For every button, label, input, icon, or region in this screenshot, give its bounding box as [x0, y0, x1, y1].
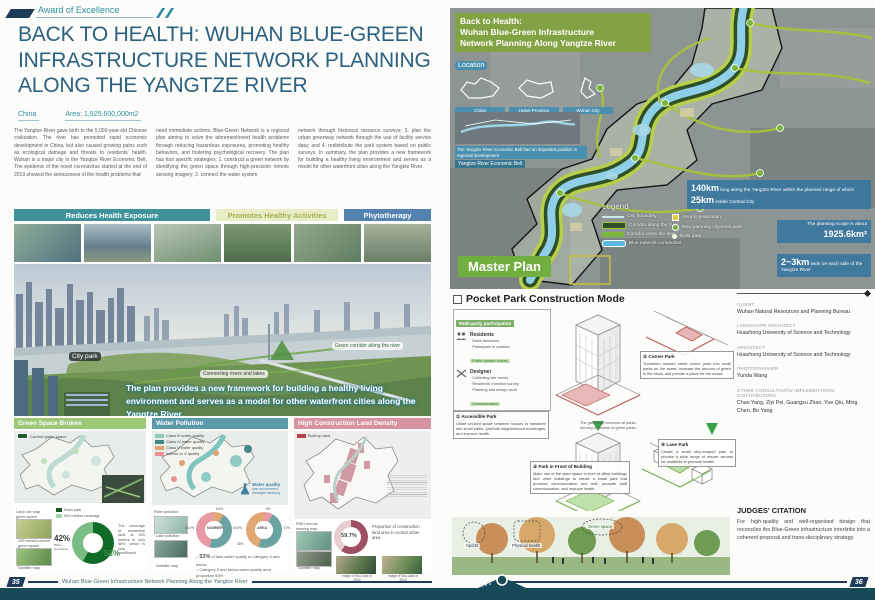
panel-green-space-broken: Green Space Broken Current green space L… — [14, 418, 146, 572]
panel-title: Green Space Broken — [14, 418, 146, 429]
participation-box: Multi-party participation Residents · Ma… — [453, 309, 551, 411]
legend-class3: Class III water quality — [166, 433, 204, 438]
greenway-note: The greenway connects all parks, forming… — [580, 421, 638, 431]
participation-title: Multi-party participation — [456, 320, 514, 327]
water-notes: – 53% of lake water quality in Category … — [196, 554, 284, 578]
donut-center: AREA — [257, 526, 267, 530]
map-label: RSEI remote sensing map — [296, 522, 330, 531]
rsei-minimap — [296, 531, 332, 551]
city-park-label: City park — [69, 352, 101, 361]
wuhan-minimap: Wuhan City — [563, 74, 613, 114]
square-bullet-icon — [453, 295, 462, 304]
sha-lake-photo-2013 — [382, 556, 422, 574]
legend-label: New planning city-level park — [682, 225, 742, 230]
satellite-minimap — [296, 551, 332, 567]
award-ribbon-block — [5, 9, 35, 18]
seg-label: 44.8% — [233, 526, 242, 530]
designer-icon — [456, 369, 467, 378]
credits-sidebar: CLIENT Wuhan Natural Resources and Plann… — [737, 293, 870, 422]
credit-label: LANDSCAPE ARCHITECT — [737, 323, 870, 329]
render-label-green-space: Green space — [586, 524, 614, 529]
thumbnail-strip — [14, 224, 431, 262]
pct-42: 42% — [54, 534, 70, 543]
legend-class4: Class IV water quality — [166, 439, 204, 444]
exist-park-swatch — [672, 234, 677, 239]
thumbnail-photo — [154, 224, 221, 262]
footer-left: 35 Wuhan Blue-Green Infrastructure Netwo… — [8, 577, 432, 587]
flask-icon — [240, 483, 250, 495]
china-minimap: China — [455, 74, 505, 114]
note-front-building: ③ Park in Front of BuildingMake use of t… — [530, 461, 630, 494]
builtup-label: Built-up land — [308, 433, 330, 438]
map-legend-points: Area in pedestrian New planning city-lev… — [672, 214, 742, 242]
page-title: BACK TO HEALTH: WUHAN BLUE-GREEN INFRAST… — [18, 22, 432, 99]
award-label: Award of Excellence — [36, 5, 153, 18]
construction-donut: 59.7% — [334, 520, 368, 554]
pct-597: 59.7% — [341, 533, 357, 539]
project-meta: China Area: 1,925,600,000m2 — [18, 111, 141, 121]
seg-label: 8.8% — [216, 507, 223, 511]
credit-label: OTHER CONSULTANTS/ IMPLEMENTORS/ CONTRIB… — [737, 388, 870, 400]
water-number-donut: NUMBER 8.8% 44.8% 46.4% — [196, 512, 232, 548]
credit-value: Huazhong University of Science and Techn… — [737, 330, 870, 337]
map-label: Satellite map — [156, 564, 178, 569]
participation-line: · Participate in creation — [470, 344, 510, 350]
thumbnail-photo — [224, 224, 291, 262]
each-park-swatch — [56, 508, 62, 512]
country-label: China — [18, 111, 39, 121]
each-park-label: Each park — [64, 508, 81, 513]
participation-line: · Residents' intention survey — [470, 381, 519, 387]
pct-42-sub: 500m uncovered — [54, 543, 72, 551]
economic-belt-caption: The Yangtze River Economic Belt has an i… — [455, 146, 587, 159]
pedestrian-swatch — [672, 214, 679, 221]
callout-140km: 140km long along the Yangtze River withi… — [687, 180, 871, 209]
map-label: Satellite map — [18, 566, 40, 571]
green-panel-note: The coverage of residential land at 500 … — [118, 524, 145, 556]
intro-col-3: network through historical resource surv… — [298, 128, 431, 179]
residents-icon — [456, 332, 467, 340]
thumbnail-photo — [84, 224, 151, 262]
map-label: Lake pollution — [156, 534, 179, 539]
seg-label: 8% — [266, 507, 271, 511]
economic-belt-minimap — [455, 112, 580, 144]
flask-sub: river environment damaged seriously — [252, 487, 290, 495]
intro-col-1: The Yangtze River gave birth to the 5,00… — [14, 128, 147, 179]
citation-title: JUDGES' CITATION — [737, 506, 870, 515]
legend-label: Exist park — [680, 234, 701, 239]
water-area-donut: AREA 8% 47% 45% — [246, 512, 282, 548]
award-ribbon: Award of Excellence — [8, 5, 171, 18]
strategy-banners: Reduces Health Exposure Promotes Healthy… — [14, 209, 431, 221]
construction-note: Proportion of construction land area in … — [372, 524, 428, 541]
note-accessible-park: ① Accessible ParkUtilize unused space be… — [453, 411, 549, 439]
credit-label: ARCHITECT — [737, 345, 870, 351]
hubei-minimap: Hubei Province — [509, 74, 559, 114]
builtup-swatch — [297, 434, 306, 438]
green-legend-label: Current green space — [30, 434, 66, 439]
slash-icon — [165, 8, 174, 18]
callout-scope: The planning scope is about1925.6km² — [777, 220, 871, 243]
note-lane-park: ④ Lane ParkCreate a small strip-shaped p… — [658, 439, 736, 467]
page-number-badge: 36 — [849, 577, 868, 587]
legend-title: Legend — [602, 202, 681, 211]
legend-inferior: Inferior to V quality — [166, 451, 199, 456]
citation-text: For high-quality and well-organised desi… — [737, 518, 870, 542]
map-title-banner: Back to Health: Wuhan Blue-Green Infrast… — [455, 13, 651, 52]
coverage-label: 500 meters coverage — [64, 514, 100, 519]
credit-value: Yunda Wang — [737, 373, 870, 380]
judges-citation: JUDGES' CITATION For high-quality and we… — [737, 506, 870, 542]
credit-value: Chao Yang, Ziyi Pei, Guangsu Zhao, Yue Q… — [737, 400, 870, 415]
page-number-badge: 35 — [6, 577, 25, 587]
thumbnail-photo — [14, 224, 81, 262]
footer-line — [252, 581, 432, 583]
pocket-park-section: Pocket Park Construction Mode Multi-part… — [450, 293, 732, 583]
city-boundary-swatch — [602, 216, 624, 218]
blue-network-swatch — [602, 240, 626, 247]
banner-phytotherapy: Phytotherapy — [344, 209, 431, 221]
credit-value: Wuhan Natural Resources and Planning Bur… — [737, 309, 870, 316]
water-quality-note: Water quality river environment damaged … — [240, 482, 290, 495]
connecting-rivers-label: Connecting rivers and lakes — [200, 370, 268, 378]
slash-icon — [156, 8, 165, 18]
diamond-icon — [864, 290, 871, 297]
banner-promotes-healthy-activities: Promotes Healthy Activities — [216, 209, 338, 221]
river-pollution-minimap — [154, 516, 188, 534]
green-legend-swatch — [17, 433, 28, 439]
pocket-park-render: Sports Physical health Green space — [452, 517, 730, 575]
participation-tag: Communication — [470, 402, 500, 406]
footer-title: Wuhan Blue-Green Infrastructure Network … — [62, 579, 248, 585]
panel-title: High Construction Land Density — [294, 418, 431, 429]
corridor-along-swatch — [602, 222, 626, 229]
intro-col-2: need immediate actions. Blue-Green Netwo… — [156, 128, 289, 179]
green-corridor-label: Green corridor along the river — [332, 342, 403, 350]
credit-label: CLIENT — [737, 302, 870, 308]
render-label-sports: Sports — [464, 543, 480, 548]
panel-title: Water Pollution — [152, 418, 288, 429]
credit-label: PHOTOGRAPHER — [737, 366, 870, 372]
map-legend: Legend City boundary Corridor along the … — [602, 202, 681, 250]
green-coverage-donut: 42% 500m uncovered 58% — [72, 522, 114, 564]
thumbnail-photo — [364, 224, 431, 262]
construction-map: Built-up land — [294, 431, 431, 519]
lake-pollution-minimap — [154, 540, 188, 558]
new-park-swatch — [672, 224, 679, 231]
thumbnail-photo — [294, 224, 361, 262]
map-label: Satellite map — [298, 566, 320, 571]
seg-label: 45% — [237, 542, 243, 546]
banner-reduces-health-exposure: Reduces Health Exposure — [14, 209, 210, 221]
legend-class5: Class V water quality — [166, 445, 203, 450]
location-minimaps: China Hubei Province Wuhan City — [455, 74, 613, 114]
footer-line — [28, 581, 58, 583]
map-note-textblock — [387, 475, 427, 497]
master-plan-label: Master Plan — [458, 256, 551, 277]
gis-minimap — [16, 548, 52, 566]
donut-center: NUMBER — [207, 526, 223, 530]
land-use-minimap — [16, 519, 52, 539]
render-label-physical-health: Physical health — [510, 543, 542, 548]
legend-label: Corridor along the river — [629, 223, 678, 228]
legend-label: City boundary — [627, 214, 657, 219]
panorama-caption: The plan provides a new framework for bu… — [126, 382, 426, 416]
corridor-cross-swatch — [602, 232, 624, 237]
panel-high-construction: High Construction Land Density Built-up … — [294, 418, 431, 572]
area-label: Area: 1,925,600,000m2 — [65, 111, 141, 121]
pct-53: 53% — [199, 554, 210, 560]
credit-value: Huazhong University of Science and Techn… — [737, 352, 870, 359]
legend-label: Area in pedestrian — [682, 215, 721, 220]
legend-label: Corridor cross the river — [627, 232, 676, 237]
panel-water-pollution: Water Pollution Class III water quality … — [152, 418, 288, 572]
green-space-map: Current green space — [14, 431, 146, 503]
seg-label: 46.4% — [185, 526, 194, 530]
coverage-swatch — [56, 514, 62, 518]
map-label: Land use map green space — [16, 510, 46, 519]
sha-lake-photo-2000 — [336, 556, 376, 574]
map-label: River pollution — [154, 510, 178, 515]
participation-line: · Planning and design work — [470, 387, 519, 393]
master-plan-map: Back to Health: Wuhan Blue-Green Infrast… — [450, 8, 875, 289]
callout-width: 2~3km wide on each side of the Yangtze R… — [777, 254, 871, 277]
location-label: Location — [455, 61, 487, 70]
map-label: GIS extract current green space — [18, 539, 50, 548]
intro-text: The Yangtze River gave birth to the 5,00… — [14, 128, 431, 179]
note-corner-park: ② Corner ParkTransform unused street cor… — [640, 351, 734, 379]
economic-belt-label: Yangtze River Economic Belt — [455, 160, 525, 168]
seg-label: 47% — [284, 526, 290, 530]
band-ornament — [430, 574, 560, 600]
poster-spread: Award of Excellence BACK TO HEALTH: WUHA… — [0, 0, 875, 600]
panorama-rendering: City park Green corridor along the river… — [14, 264, 431, 416]
participation-tag: Public opinion survey — [470, 359, 510, 363]
